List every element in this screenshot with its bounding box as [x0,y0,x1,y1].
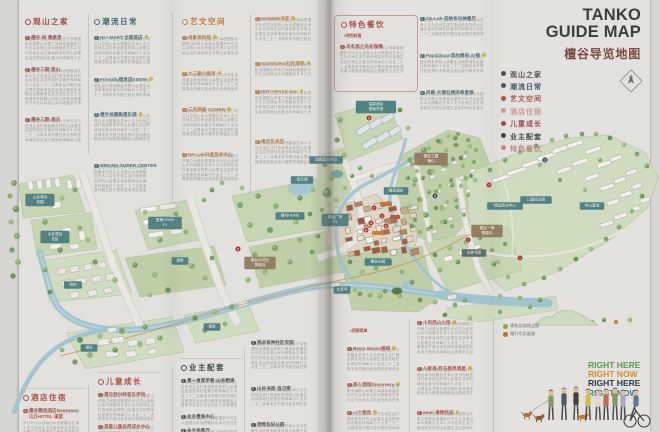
svg-text:大草坪: 大草坪 [336,286,347,291]
svg-text:4: 4 [370,221,372,225]
svg-text:3: 3 [544,158,546,162]
svg-text:8: 8 [385,224,387,228]
svg-text:5: 5 [237,247,239,251]
svg-text:6: 6 [365,228,367,232]
svg-text:檀谷之巅: 檀谷之巅 [424,153,439,158]
svg-text:慢村HOME: 慢村HOME [281,212,300,217]
svg-text:拾谷: 拾谷 [69,281,77,286]
svg-text:精品酒店: 精品酒店 [389,187,404,192]
svg-text:1: 1 [467,238,469,242]
svg-text:F1: F1 [333,220,337,224]
svg-text:梅山: 梅山 [427,158,435,163]
svg-text:N: N [629,76,633,82]
svg-text:檀谷示范区: 檀谷示范区 [251,257,270,262]
svg-text:售楼处: 售楼处 [254,262,265,267]
svg-text:1: 1 [519,256,521,260]
svg-text:悦元湖: 悦元湖 [296,176,307,181]
svg-text:檀谷广场: 檀谷广场 [328,214,343,219]
svg-text:温泉酒店: 温泉酒店 [369,101,384,106]
svg-text:3: 3 [381,214,383,218]
svg-text:花园: 花园 [36,199,44,204]
svg-text:儿童运动场: 儿童运动场 [527,196,546,201]
svg-text:悦榕学堂: 悦榕学堂 [369,106,384,111]
svg-text:2: 2 [434,194,436,198]
svg-text:社区: 社区 [51,236,59,241]
svg-text:湖岸: 湖岸 [208,323,216,328]
svg-text:9: 9 [368,116,370,120]
svg-text:2: 2 [373,206,375,210]
svg-text:中山营地: 中山营地 [585,202,600,207]
svg-text:温泉酒店中心: 温泉酒店中心 [315,156,337,161]
svg-text:檀谷公园: 檀谷公园 [371,258,386,263]
svg-text:漫谷: 漫谷 [85,344,93,349]
svg-text:山谷漫谷: 山谷漫谷 [33,194,48,199]
svg-text:山谷漫谷: 山谷漫谷 [48,231,63,236]
